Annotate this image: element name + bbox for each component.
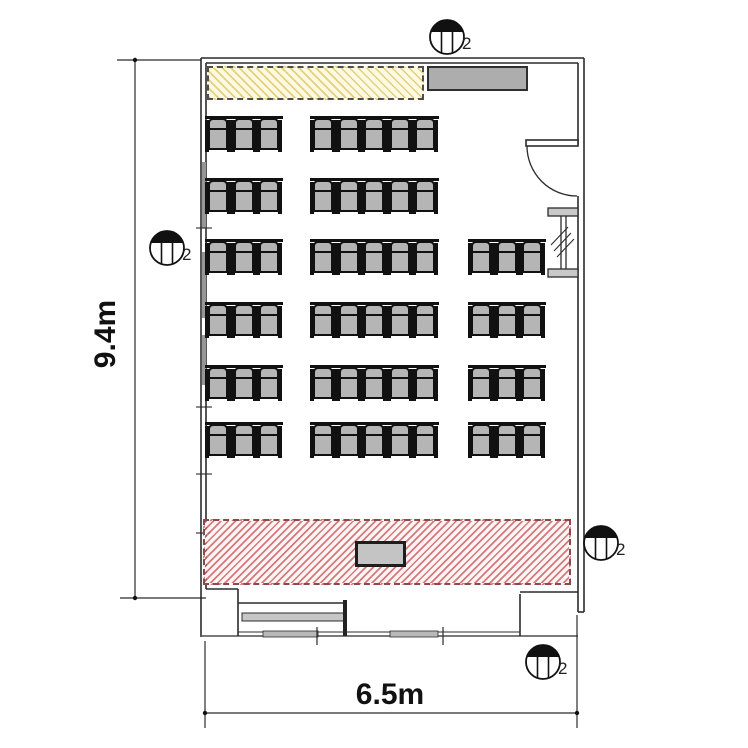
fixture-count-label: 2 — [462, 35, 471, 52]
light-fixture-icon — [428, 18, 466, 56]
fixture-count-label: 2 — [558, 660, 567, 677]
light-fixture-icon — [524, 643, 562, 681]
fixtures-layer: 2222 — [0, 0, 748, 748]
fixture-count-label: 2 — [182, 246, 191, 263]
light-fixture-icon — [582, 524, 620, 562]
fixture-count-label: 2 — [616, 541, 625, 558]
floor-plan-canvas: 2222 9.4m 6.5m — [0, 0, 748, 748]
width-dimension-label: 6.5m — [356, 678, 424, 712]
light-fixture-icon — [148, 229, 186, 267]
height-dimension-label: 9.4m — [89, 300, 123, 368]
